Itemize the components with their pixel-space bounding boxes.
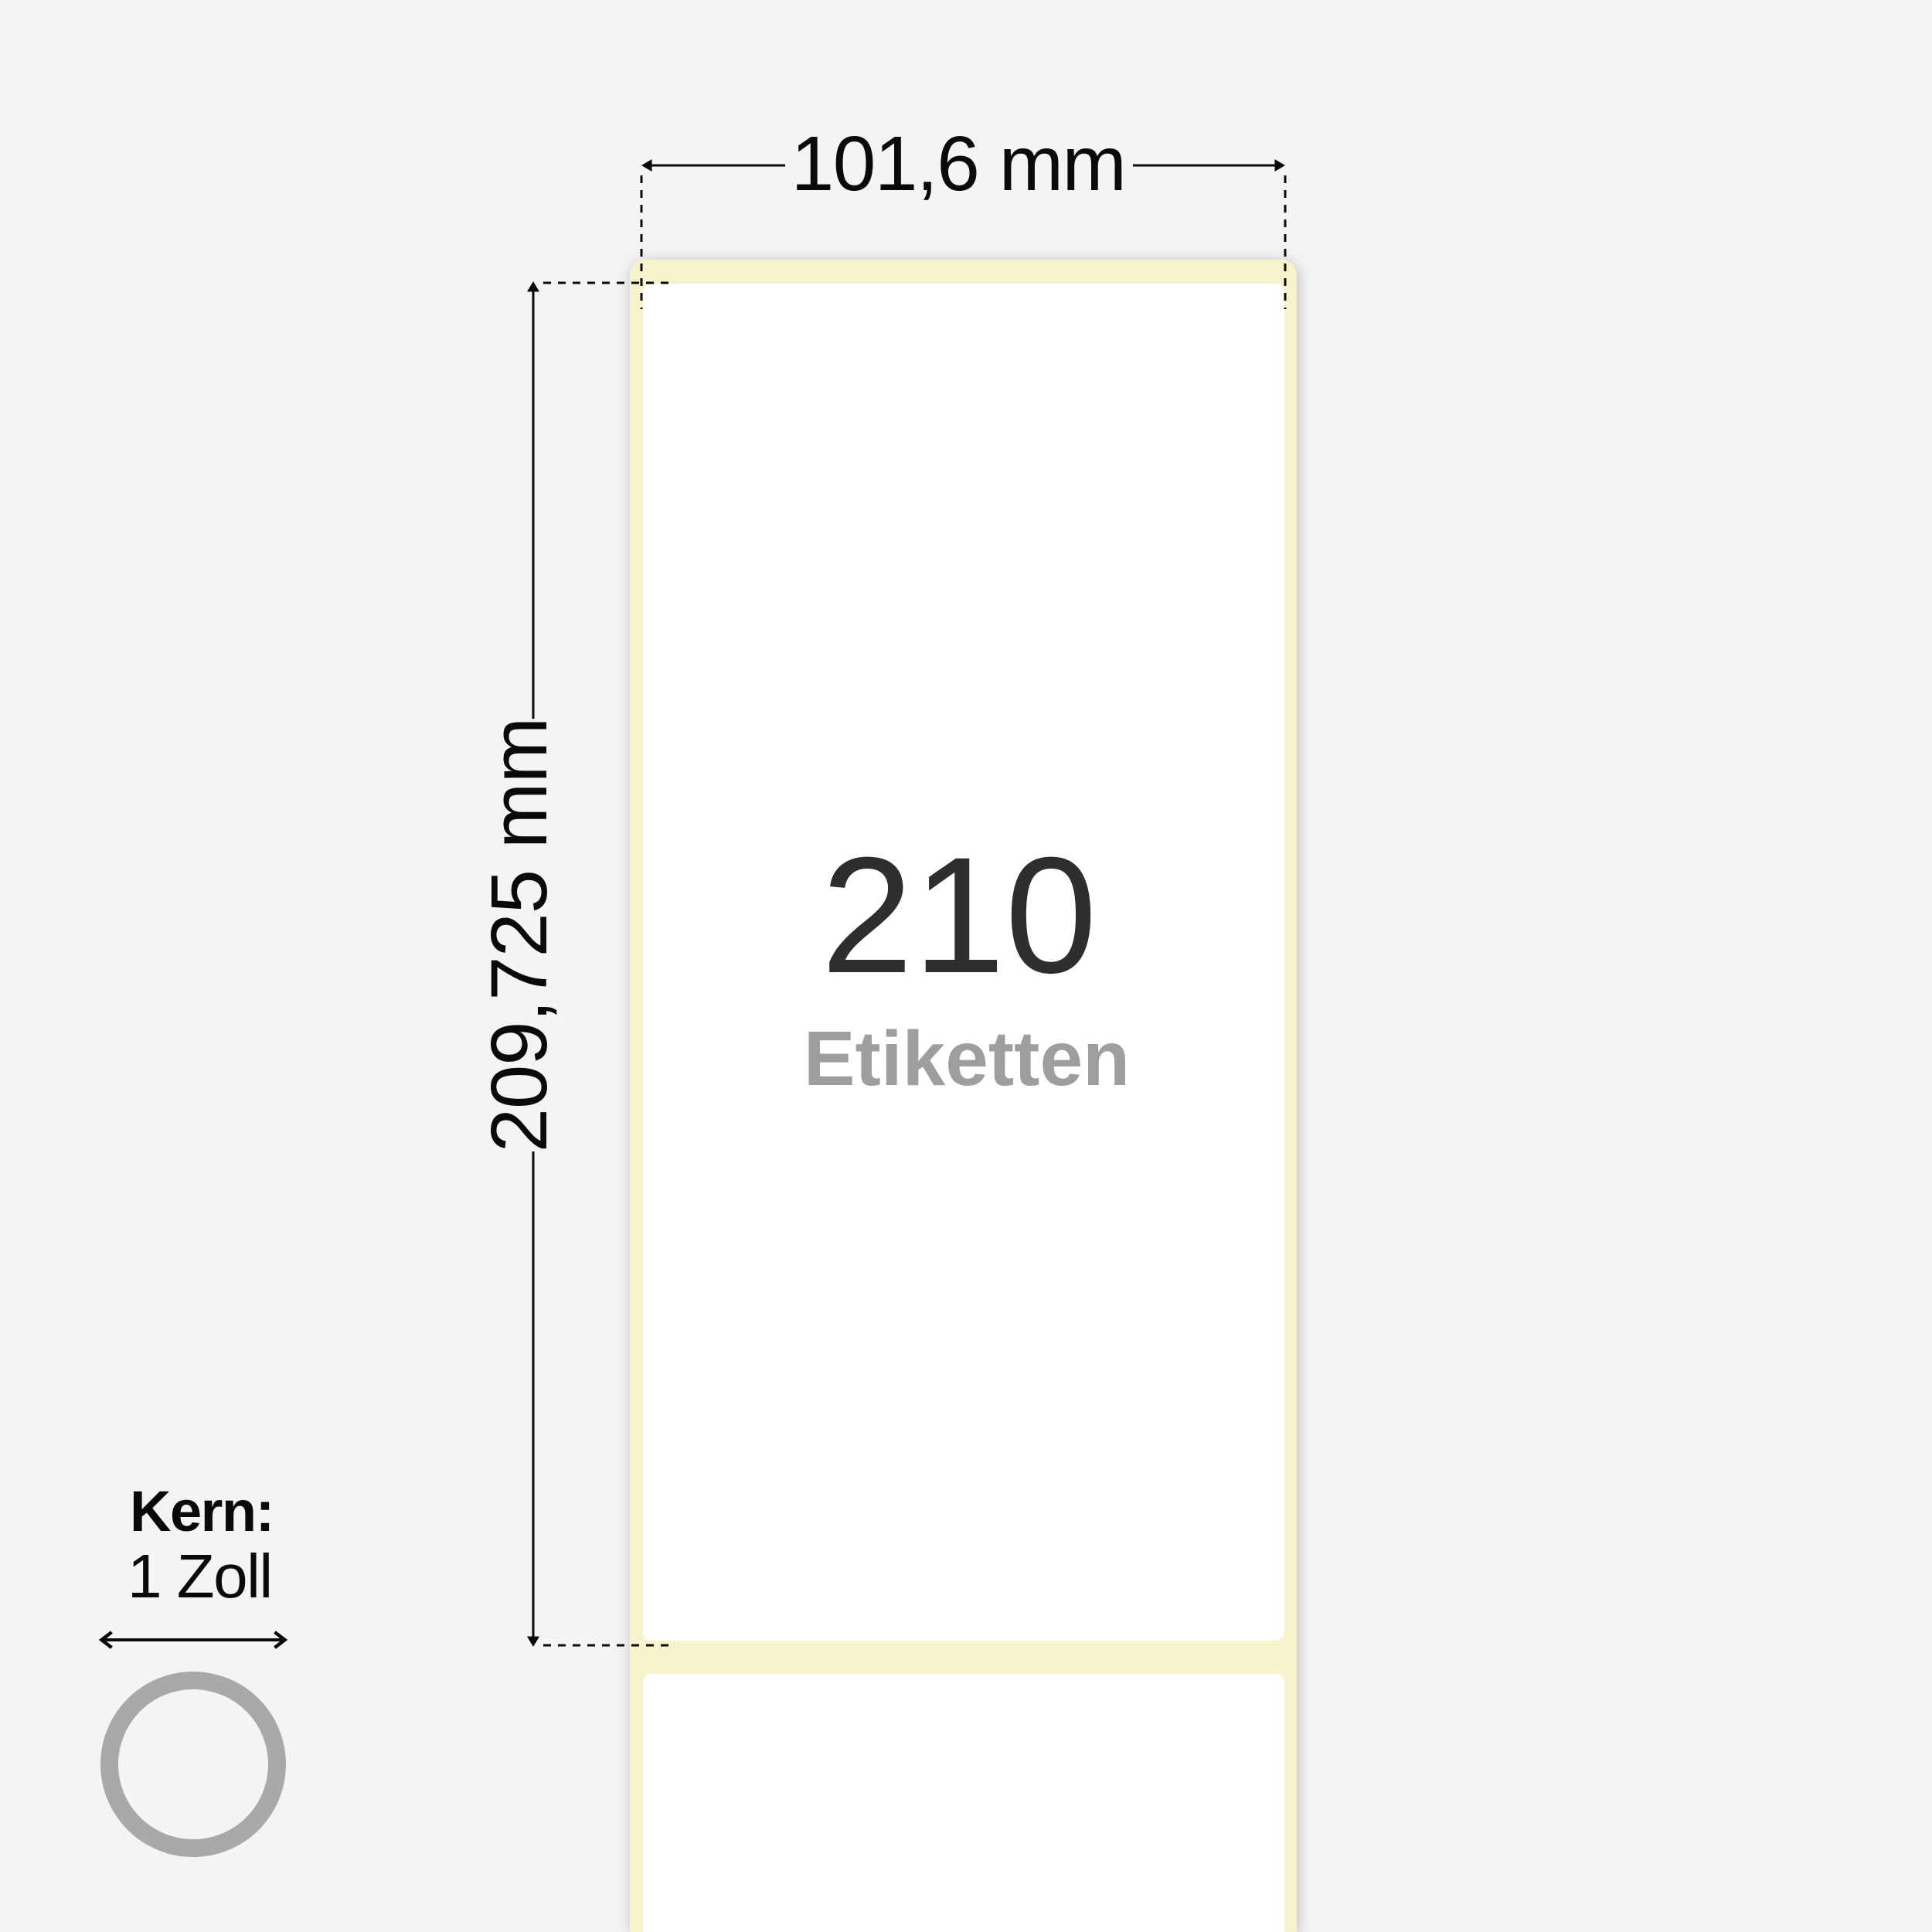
svg-text:209,725 mm: 209,725 mm: [474, 718, 563, 1153]
svg-text:101,6 mm: 101,6 mm: [791, 121, 1126, 207]
svg-text:1 Zoll: 1 Zoll: [128, 1542, 272, 1611]
svg-text:Etiketten: Etiketten: [804, 1015, 1130, 1102]
svg-text:210: 210: [821, 823, 1097, 1008]
svg-text:Kern:: Kern:: [130, 1479, 274, 1543]
